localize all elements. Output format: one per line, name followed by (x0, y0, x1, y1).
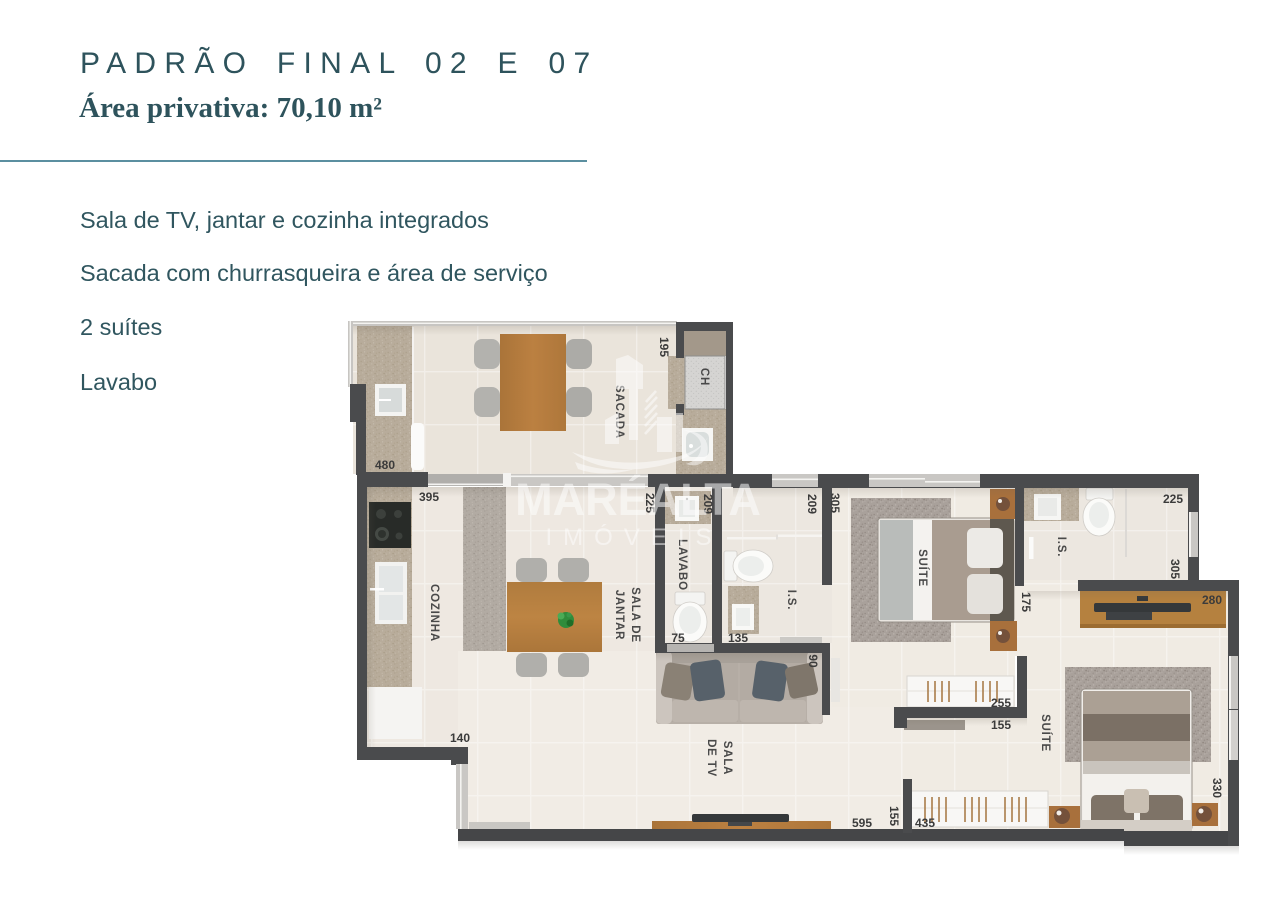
svg-text:195: 195 (657, 337, 671, 357)
svg-text:209: 209 (805, 494, 819, 514)
svg-text:I.S.: I.S. (1055, 537, 1067, 557)
svg-text:435: 435 (915, 816, 935, 830)
svg-text:225: 225 (1163, 492, 1183, 506)
svg-text:75: 75 (671, 631, 685, 645)
svg-text:280: 280 (1202, 593, 1222, 607)
svg-text:395: 395 (419, 490, 439, 504)
svg-text:MARÉALTA: MARÉALTA (515, 474, 761, 525)
svg-text:140: 140 (450, 731, 470, 745)
svg-text:305: 305 (828, 493, 842, 513)
svg-text:155: 155 (991, 718, 1011, 732)
svg-text:255: 255 (991, 696, 1011, 710)
svg-text:330: 330 (1210, 778, 1224, 798)
svg-text:I.S.: I.S. (785, 590, 797, 610)
svg-text:IMÓVEIS: IMÓVEIS (545, 524, 722, 551)
svg-text:SUÍTE: SUÍTE (1039, 714, 1052, 752)
svg-text:305: 305 (1168, 559, 1182, 579)
svg-text:SALA DE: SALA DE (629, 587, 641, 643)
svg-text:480: 480 (375, 458, 395, 472)
svg-text:JANTAR: JANTAR (613, 590, 625, 641)
svg-text:155: 155 (887, 806, 901, 826)
svg-text:175: 175 (1019, 592, 1033, 612)
svg-text:SUÍTE: SUÍTE (916, 549, 929, 587)
svg-text:COZINHA: COZINHA (428, 584, 440, 642)
svg-text:CH: CH (698, 368, 710, 386)
svg-text:595: 595 (852, 816, 872, 830)
svg-text:90: 90 (806, 654, 820, 668)
svg-text:SALA: SALA (721, 741, 733, 776)
svg-text:DE TV: DE TV (705, 739, 717, 777)
svg-text:135: 135 (728, 631, 748, 645)
